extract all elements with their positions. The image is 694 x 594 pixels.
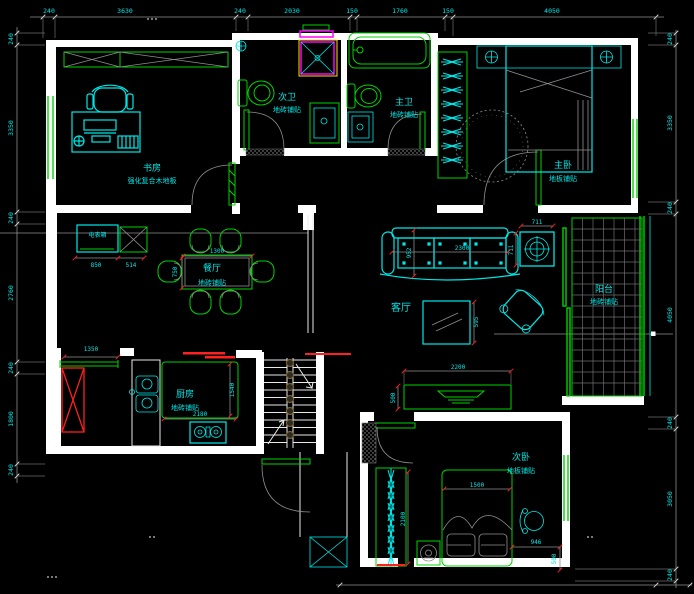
meter-offset-dim: 514 [126, 262, 137, 269]
sofa-depth-dim: 952 [406, 247, 413, 258]
bed-width-dim: 1500 [470, 482, 485, 489]
column-hatch [362, 423, 376, 463]
vanity-sink [348, 112, 373, 142]
cad-floorplan-viewport[interactable]: 240 3630 240 2030 150 1760 150 4050 240 … [0, 0, 694, 594]
dining-table-depth-dim: 750 [172, 266, 179, 277]
master-bath-label: 主卫 [395, 96, 413, 108]
dim-top-2: 3630 [117, 7, 133, 15]
dim-right-7: 240 [666, 569, 674, 581]
balcony-tile-grid [572, 218, 642, 396]
dim-top-1: 240 [43, 7, 55, 15]
mirror-dim: 595 [473, 316, 480, 327]
room-second-bath: 次卫 地砖铺贴 [236, 25, 339, 143]
sliding-door-rail [183, 352, 225, 355]
entry-zone [310, 537, 347, 567]
exhaust-fan-icon [236, 41, 246, 51]
floorplan-canvas[interactable]: 240 3630 240 2030 150 1760 150 4050 240 … [0, 0, 694, 594]
dim-left-4: 2760 [7, 285, 15, 301]
living-label: 客厅 [391, 301, 411, 314]
dim-left-7: 240 [7, 464, 15, 476]
hatched-cabinet [120, 227, 147, 252]
study-label: 书房 [143, 162, 161, 174]
tv-cabinet [404, 385, 511, 409]
study-door [192, 163, 235, 205]
side-table-depth-dim: 711 [508, 244, 515, 255]
bookshelf-cabinet [64, 52, 228, 67]
dining-label: 餐厅 [203, 262, 221, 274]
second-bedroom-finish-label: 地板铺贴 [507, 466, 535, 475]
chair [520, 509, 544, 534]
kitchen-label: 厨房 [176, 388, 194, 400]
dim-right-5: 240 [666, 417, 674, 429]
dining-finish-label: 地砖铺贴 [198, 278, 226, 287]
dimension-right: 240 3350 240 4050 240 3050 240 [575, 30, 678, 588]
kitchen-depth-dim: 1540 [229, 382, 236, 397]
room-second-bedroom: 1500 2100 946 500 次卧 地板铺贴 [362, 423, 562, 572]
room-living: 2300 952 711 711 595 2200 500 客厅 [380, 219, 555, 411]
nightstand-depth-dim: 500 [551, 553, 558, 564]
second-bedroom-label: 次卧 [512, 451, 530, 463]
sofa [380, 228, 520, 280]
nightstand-right [592, 46, 621, 68]
dim-right-4: 4050 [666, 307, 674, 323]
room-study: 书房 强化复合木地板 [64, 52, 228, 185]
flue-shaft [62, 368, 84, 432]
master-bath-finish-label: 地砖铺贴 [390, 110, 418, 119]
desk-chair [87, 85, 133, 112]
room-balcony: 阳台 地砖铺贴 [572, 218, 642, 396]
dim-top-5: 150 [346, 7, 358, 15]
balcony-finish-label: 地砖铺贴 [590, 297, 618, 306]
master-bedroom-finish-label: 地板铺贴 [549, 174, 577, 183]
master-bedroom-door [484, 150, 541, 205]
second-bedroom-door [375, 423, 415, 463]
elevator [310, 537, 347, 567]
toilet [347, 84, 381, 108]
desk [72, 112, 140, 152]
meter-box-label: 电表箱 [88, 231, 106, 239]
armchair [498, 285, 548, 335]
room-kitchen: 1350 2180 1540 厨房 地砖铺贴 [60, 346, 351, 446]
second-bath-label: 次卫 [278, 91, 296, 103]
coffee-table-mirror [423, 301, 470, 344]
dim-top-4: 2030 [284, 7, 300, 15]
balcony-label: 阳台 [595, 283, 613, 295]
dim-left-1: 240 [7, 33, 15, 45]
windows [48, 96, 650, 521]
dim-right-2: 3350 [666, 115, 674, 131]
room-master-bath: 主卫 地砖铺贴 [347, 33, 430, 142]
kitchen-finish-label: 地砖铺贴 [171, 403, 199, 412]
second-bath-door [244, 110, 284, 155]
side-table [520, 232, 554, 266]
kitchen-front-dim: 1350 [84, 346, 99, 353]
room-dining: 1300 750 餐厅 地砖铺贴 电表箱 850 514 [73, 225, 274, 314]
second-bath-finish-label: 地砖铺贴 [273, 105, 301, 114]
dim-right-6: 3050 [666, 491, 674, 507]
double-bed [506, 46, 592, 172]
tv-depth-dim: 500 [390, 392, 397, 403]
tv-width-dim: 2200 [451, 364, 466, 371]
wardrobe [438, 52, 467, 178]
bed-length-dim: 2100 [400, 511, 407, 526]
low-cabinet [60, 360, 118, 368]
dimension-left: 240 3350 240 2760 240 1800 240 [7, 27, 45, 483]
dim-top-6: 1760 [392, 7, 408, 15]
meter-width-dim: 850 [91, 262, 102, 269]
sofa-width-dim: 2300 [455, 245, 470, 252]
balcony-sliding-door [563, 228, 566, 306]
shower [299, 40, 337, 76]
entry-door [262, 459, 310, 512]
study-finish-label: 强化复合木地板 [128, 176, 177, 185]
room-master-bedroom: 主卧 地板铺贴 [438, 46, 621, 183]
master-bedroom-label: 主卧 [554, 159, 572, 171]
sink [130, 376, 159, 412]
dim-right-1: 240 [666, 33, 674, 45]
dim-top-3: 240 [234, 7, 246, 15]
shelf [303, 25, 329, 30]
nightstand-width-dim: 946 [531, 539, 542, 546]
dim-top-8: 4050 [544, 7, 560, 15]
stove [190, 422, 226, 443]
dim-left-6: 1800 [7, 411, 15, 427]
dim-left-3: 240 [7, 212, 15, 224]
staircase [264, 358, 316, 448]
dim-left-2: 3350 [7, 120, 15, 136]
kitchen-width-dim: 2180 [193, 411, 208, 418]
dim-left-5: 240 [7, 362, 15, 374]
side-table-width-dim: 711 [532, 219, 543, 226]
toilet [238, 80, 274, 106]
dim-top-7: 150 [442, 7, 454, 15]
vanity-sink [310, 103, 339, 143]
dining-table-width-dim: 1300 [210, 248, 225, 255]
nightstand-left [477, 46, 506, 68]
meter-box: 电表箱 [77, 225, 118, 252]
stair-rail-posts [287, 360, 294, 439]
walls [46, 33, 644, 567]
dim-right-3: 240 [666, 202, 674, 214]
